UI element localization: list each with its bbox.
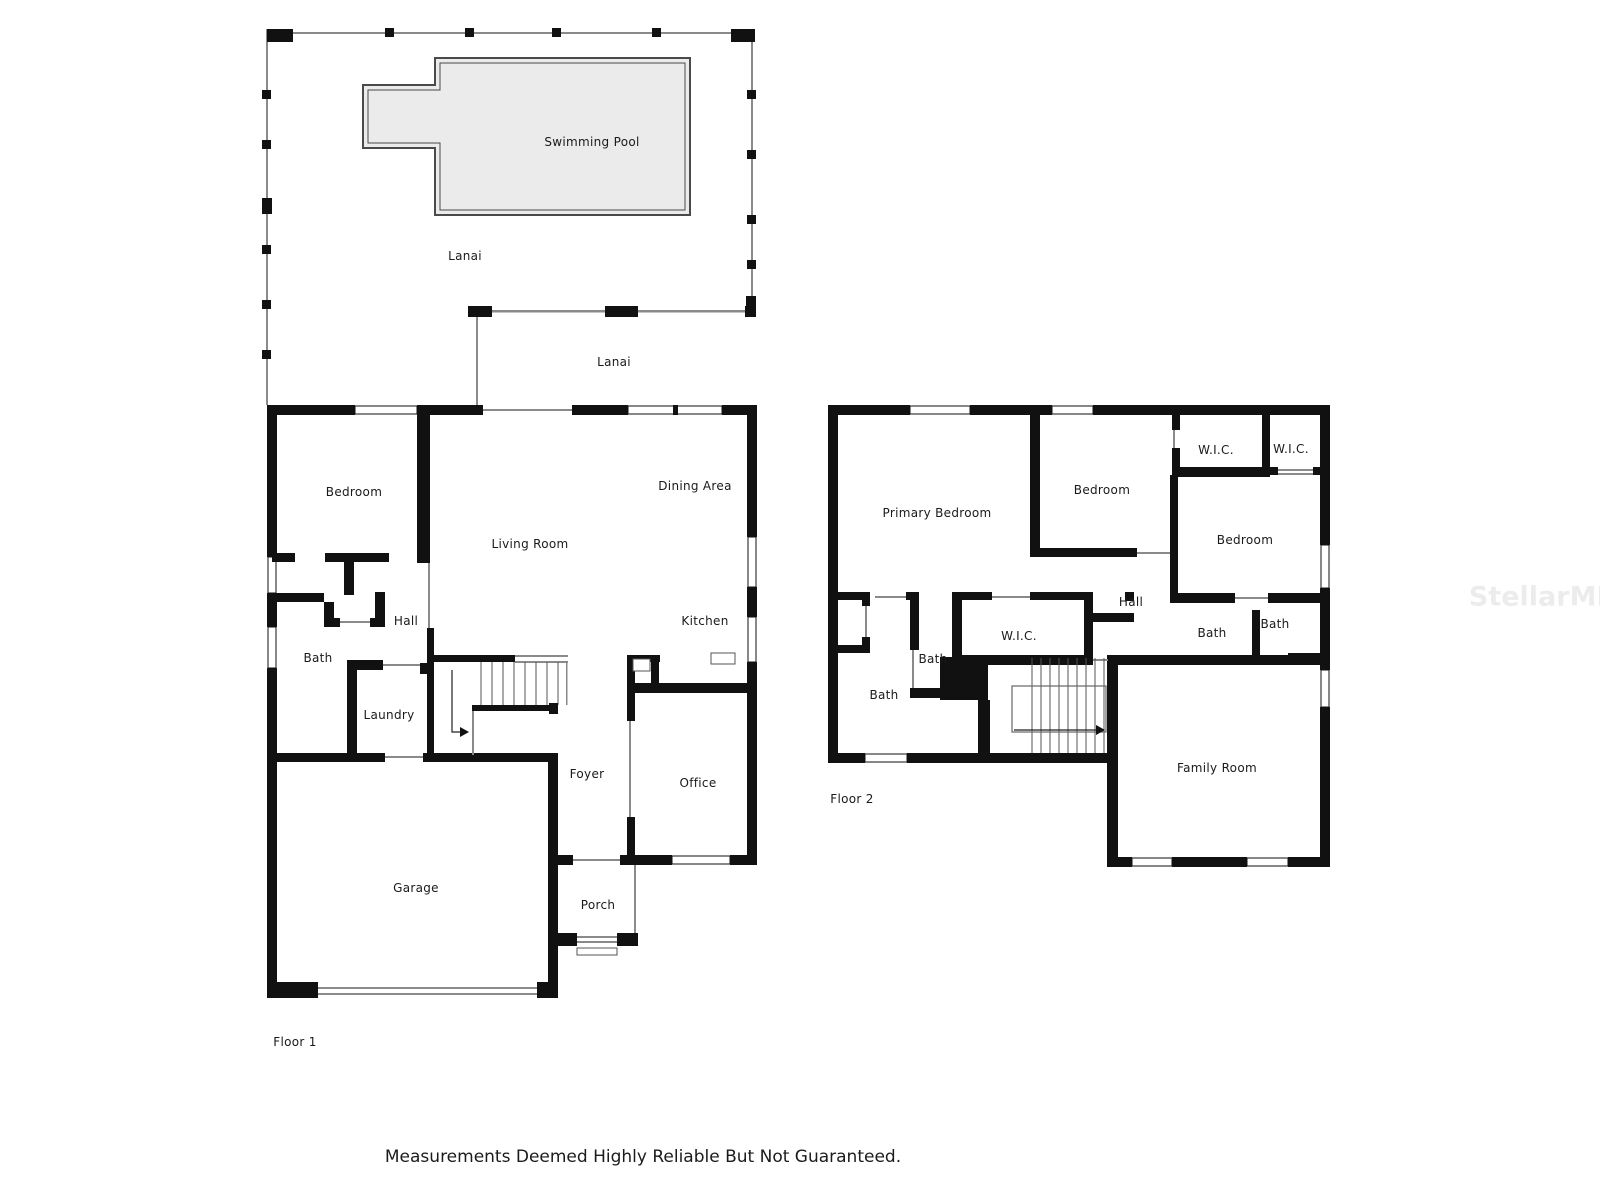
disclaimer-text: Measurements Deemed Highly Reliable But … bbox=[385, 1147, 901, 1167]
room-label-wic-top-right: W.I.C. bbox=[1273, 442, 1309, 456]
room-label-primary-bedroom: Primary Bedroom bbox=[883, 506, 992, 520]
room-label-family-room: Family Room bbox=[1177, 761, 1257, 775]
room-label-garage: Garage bbox=[393, 881, 439, 895]
floor-plan-page: Swimming Pool Lanai Lanai Bedroom Living… bbox=[0, 0, 1600, 1200]
room-label-office: Office bbox=[679, 776, 716, 790]
room-label-lanai-pool-deck: Lanai bbox=[448, 249, 482, 263]
stairs-floor2 bbox=[1012, 658, 1106, 753]
room-label-wic-center: W.I.C. bbox=[1001, 629, 1037, 643]
room-label-bath-right-outer: Bath bbox=[1260, 617, 1289, 631]
floor2-label: Floor 2 bbox=[830, 792, 873, 806]
room-label-bath-right-inner: Bath bbox=[1197, 626, 1226, 640]
floor2-walls bbox=[828, 405, 1330, 867]
room-label-kitchen: Kitchen bbox=[681, 614, 728, 628]
room-label-living-room: Living Room bbox=[492, 537, 569, 551]
floor-plan-drawing bbox=[0, 0, 1600, 1200]
room-label-bath-center-small: Bath bbox=[918, 652, 947, 666]
room-label-hall-f2: Hall bbox=[1119, 595, 1143, 609]
room-label-hall-f1: Hall bbox=[394, 614, 418, 628]
room-label-wic-top-left: W.I.C. bbox=[1198, 443, 1234, 457]
stellar-mls-watermark: StellarMLS bbox=[1469, 582, 1600, 613]
room-label-bedroom-center: Bedroom bbox=[1074, 483, 1130, 497]
room-label-porch: Porch bbox=[581, 898, 616, 912]
swimming-pool-shape bbox=[363, 58, 690, 215]
room-label-bedroom-f1: Bedroom bbox=[326, 485, 382, 499]
room-label-dining-area: Dining Area bbox=[658, 479, 731, 493]
room-label-bedroom-right: Bedroom bbox=[1217, 533, 1273, 547]
room-label-laundry: Laundry bbox=[363, 708, 414, 722]
room-label-swimming-pool: Swimming Pool bbox=[544, 135, 639, 149]
floor1-label: Floor 1 bbox=[273, 1035, 316, 1049]
room-label-lanai-covered: Lanai bbox=[597, 355, 631, 369]
room-label-foyer: Foyer bbox=[570, 767, 605, 781]
room-label-bath-f1: Bath bbox=[303, 651, 332, 665]
room-label-bath-primary: Bath bbox=[869, 688, 898, 702]
stairs-floor1 bbox=[433, 655, 568, 755]
